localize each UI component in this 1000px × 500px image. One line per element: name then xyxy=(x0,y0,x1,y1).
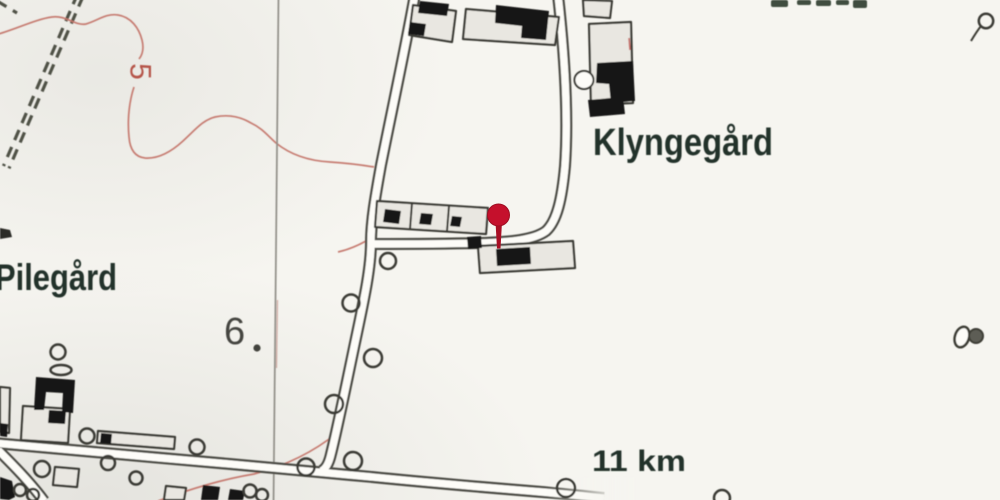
red-tick xyxy=(629,38,630,50)
house xyxy=(383,209,401,224)
label-pilegaard: Pilegård xyxy=(0,257,117,298)
pin-head xyxy=(488,204,510,226)
tree-symbol xyxy=(969,329,983,343)
farm-building xyxy=(100,433,112,444)
house xyxy=(450,216,462,227)
house-row xyxy=(375,201,488,234)
farm-building xyxy=(0,423,8,437)
courtyard xyxy=(575,71,594,89)
topographic-map: Klyngegård Pilegård 11 km 6 5 xyxy=(0,0,1000,500)
label-parcel-number: 6 xyxy=(224,311,245,353)
farm-building xyxy=(408,22,426,36)
label-klyngegaard: Klyngegård xyxy=(593,122,773,164)
farm-building xyxy=(48,410,66,424)
building-plot xyxy=(53,467,79,487)
house xyxy=(419,213,433,225)
label-contour-value: 5 xyxy=(124,63,157,80)
road-fade-out xyxy=(545,477,635,500)
building-plot xyxy=(583,0,612,18)
house xyxy=(496,247,531,266)
building-plot xyxy=(164,486,186,500)
house xyxy=(467,236,482,249)
farm-building xyxy=(201,485,220,500)
map-canvas[interactable]: Klyngegård Pilegård 11 km 6 5 xyxy=(0,0,1000,500)
farm-building xyxy=(588,97,625,117)
parcel-dot xyxy=(253,344,260,351)
label-distance: 11 km xyxy=(592,445,686,478)
